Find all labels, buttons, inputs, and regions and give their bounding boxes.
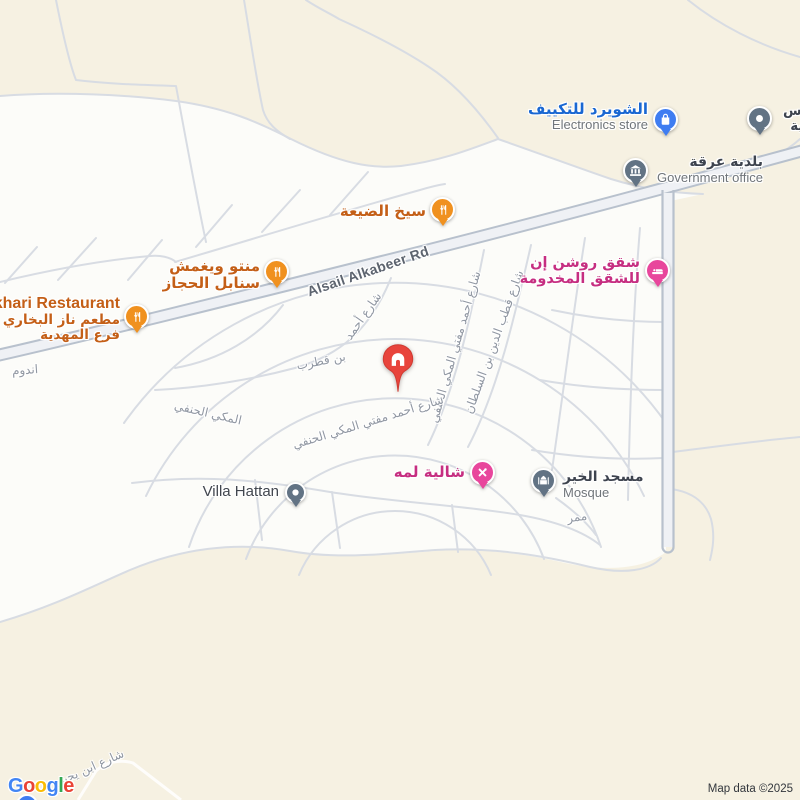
leisure-paddles-icon — [476, 466, 489, 479]
poi-name-line1: منتو ويغمش — [163, 258, 260, 275]
government-office-label[interactable]: بلدية عرقة Government office — [657, 155, 763, 185]
villa-hattan-marker[interactable] — [285, 482, 306, 503]
restaurant-manto-label[interactable]: منتو ويغمش سنابل الحجاز — [163, 258, 260, 292]
poi-name: مسجد الخير — [563, 470, 644, 486]
chalet-lamah-marker[interactable] — [470, 460, 495, 485]
hotel-roshan-label[interactable]: شقق روشن إن للشقق المخدومة — [520, 255, 640, 287]
fork-knife-icon — [131, 311, 143, 323]
street-label-left-edge-partial: اندوم — [11, 362, 38, 378]
poi-category: Government office — [657, 171, 763, 186]
poi-name: سيخ الضيعة — [340, 203, 426, 220]
poi-name-line2: للشقق المخدومة — [520, 271, 640, 287]
poi-name: بلدية عرقة — [657, 155, 763, 171]
poi-name: Villa Hattan — [203, 484, 279, 501]
property-pin-marker[interactable] — [379, 343, 417, 398]
mosque-icon — [537, 474, 550, 487]
restaurant-bukhari-marker[interactable] — [124, 304, 149, 329]
fork-knife-icon — [271, 266, 283, 278]
poi-name-line1: شقق روشن إن — [520, 255, 640, 271]
logo-letter: o — [35, 775, 47, 797]
shopping-bag-icon — [659, 113, 672, 126]
fork-knife-icon — [437, 204, 449, 216]
electronics-store-marker[interactable] — [653, 107, 678, 132]
poi-name-partial: khari Restaurant — [0, 295, 120, 313]
poi-name-ar-line2: فرع المهدية — [0, 328, 120, 343]
logo-letter: G — [8, 775, 23, 797]
poi-name-fragment: ـدس — [783, 104, 800, 119]
top-right-partial-marker[interactable] — [747, 106, 772, 131]
poi-name: شالية لمه — [394, 464, 465, 481]
logo-letter: o — [23, 775, 35, 797]
poi-name: الشويرد للتكييف — [528, 101, 648, 118]
villa-hattan-label[interactable]: Villa Hattan — [203, 484, 279, 501]
map-attribution: Map data ©2025 — [708, 783, 793, 795]
mosque-marker[interactable] — [531, 468, 556, 493]
logo-letter: e — [63, 775, 74, 797]
logo-letter: g — [47, 775, 59, 797]
street-label-passage: ممر — [566, 509, 588, 526]
poi-name-line2: سنابل الحجاز — [163, 275, 260, 292]
poi-name-fragment: ـبية — [783, 119, 800, 134]
bank-building-icon — [629, 164, 642, 177]
poi-category: Mosque — [563, 486, 644, 501]
mosque-label[interactable]: مسجد الخير Mosque — [563, 470, 644, 500]
top-right-partial-label: ـدس ـبية — [783, 104, 800, 134]
map-canvas[interactable]: Alsail Alkabeer Rd شارع أحمد بن قطرب شار… — [0, 0, 800, 800]
road-network — [0, 0, 800, 800]
poi-category: Electronics store — [528, 118, 648, 133]
poi-name-ar-line1: مطعم ناز البخاري — [0, 313, 120, 328]
electronics-store-label[interactable]: الشويرد للتكييف Electronics store — [528, 101, 648, 132]
dot-icon — [753, 112, 766, 125]
dot-icon — [290, 487, 301, 498]
restaurant-seekh-marker[interactable] — [430, 197, 455, 222]
government-office-marker[interactable] — [623, 158, 648, 183]
hotel-roshan-marker[interactable] — [645, 258, 670, 283]
restaurant-bukhari-label[interactable]: khari Restaurant مطعم ناز البخاري فرع ال… — [0, 295, 120, 343]
google-logo[interactable]: Google — [8, 775, 74, 798]
restaurant-manto-marker[interactable] — [264, 259, 289, 284]
restaurant-seekh-label[interactable]: سيخ الضيعة — [340, 203, 426, 220]
chalet-lamah-label[interactable]: شالية لمه — [394, 464, 465, 481]
bed-icon — [651, 264, 664, 277]
